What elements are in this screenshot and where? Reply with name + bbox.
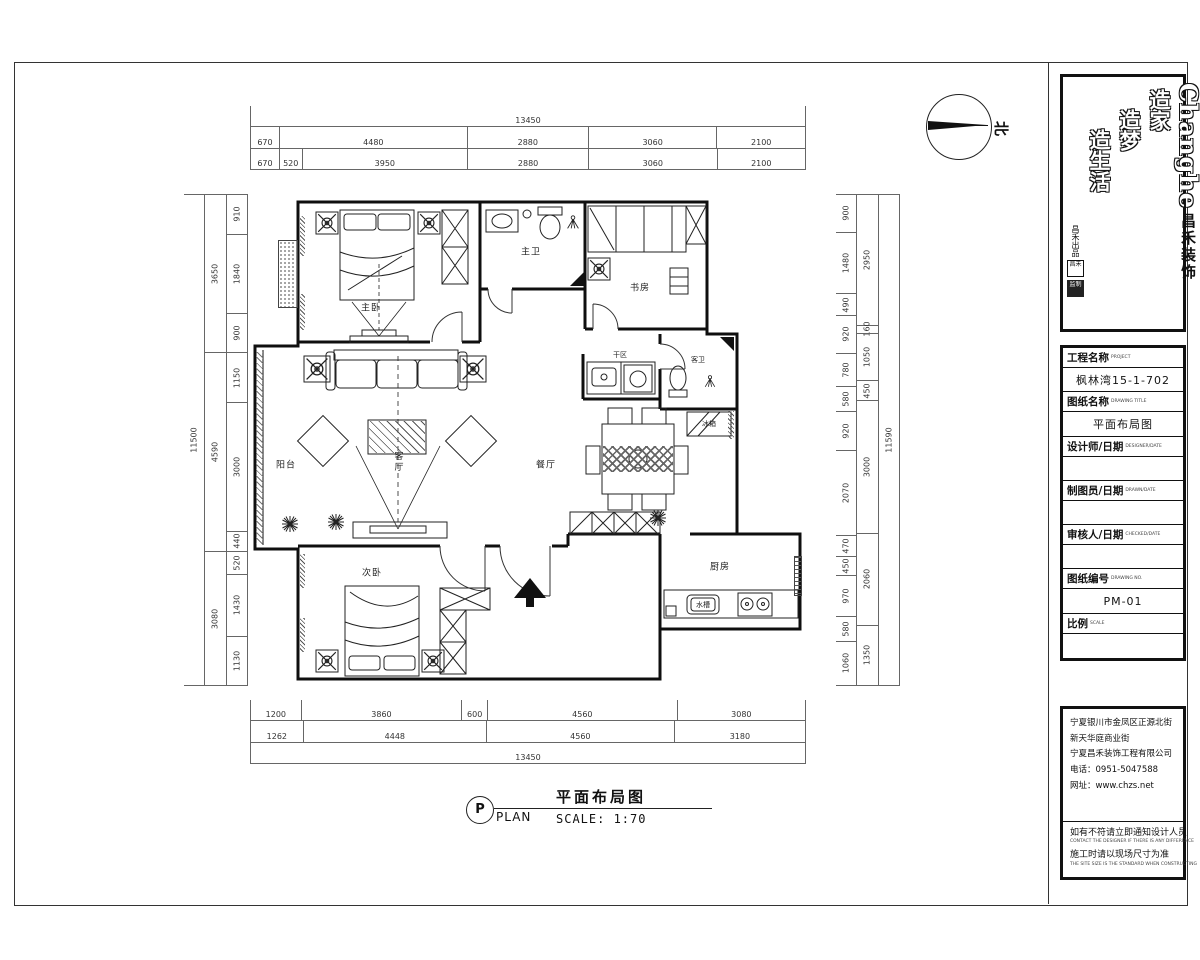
dimension-segment: 450: [836, 556, 856, 575]
room-label-living: 客厅: [392, 451, 405, 473]
dimension-value: 2880: [518, 159, 538, 168]
floor-plan: 主卧 主卫 书房 阳台 客厅 餐厅 干区 客卫 冰箱 厨房 水槽 次卧: [250, 194, 806, 686]
dimension-segment: 4480: [279, 127, 467, 147]
dimension-segment: 1200: [250, 700, 301, 720]
brand-slogan: 造梦: [1114, 83, 1144, 323]
dimensions-left: 11500 365045903080 910184090011503000440…: [184, 194, 248, 686]
dim-col: 365045903080: [205, 194, 226, 686]
dimension-value: 520: [232, 555, 241, 570]
dimension-value: 1060: [842, 653, 851, 673]
titleblock-field-value: 枫林湾15-1-702: [1063, 368, 1183, 392]
curtain-symbol: [300, 294, 305, 330]
label-fridge: 冰箱: [702, 419, 716, 429]
caption-underline: [494, 808, 712, 809]
dimension-segment: 4590: [205, 352, 225, 551]
room-label-dining: 餐厅: [536, 458, 556, 471]
brand-logo-en: Changhe: [1174, 83, 1200, 209]
address-line: 宁夏昌禾装饰工程有限公司: [1070, 747, 1176, 763]
field-label-cn: 图纸编号: [1067, 571, 1109, 586]
north-label: 北: [991, 121, 1012, 136]
dimension-segment: 580: [836, 616, 856, 641]
dimension-segment: 3080: [677, 700, 805, 720]
dimension-value: 1840: [232, 264, 241, 284]
dimension-value: 580: [842, 391, 851, 406]
dimension-segment: 520: [279, 149, 302, 169]
dimension-segment: 1050: [857, 333, 877, 380]
dimension-value: 1130: [232, 651, 241, 671]
dimension-segment: 1150: [227, 352, 247, 402]
dimension-segment: 470: [836, 535, 856, 555]
titleblock-field-label: 制图员/日期DRAWN/DATE: [1063, 481, 1183, 501]
dimension-value: 3860: [371, 710, 391, 719]
dimension-value: 1200: [266, 710, 286, 719]
curtain-symbol: [300, 216, 305, 256]
room-label-dry-area: 干区: [613, 350, 627, 360]
field-label-cn: 审核人/日期: [1067, 527, 1123, 542]
dimension-segment: 780: [836, 353, 856, 386]
field-label-en: DESIGNER/DATE: [1125, 444, 1162, 449]
dimension-segment: 970: [836, 575, 856, 616]
dimension-segment: 900: [227, 313, 247, 352]
note-en: THE SITE SIZE IS THE STANDARD WHEN CONST…: [1070, 862, 1176, 867]
room-label-master-bedroom: 主卧: [361, 301, 381, 314]
address-line: 新天华庭商业街: [1070, 732, 1176, 748]
dimension-segment: 600: [461, 700, 487, 720]
dimension-value: 4480: [363, 138, 383, 147]
dimension-segment: 2060: [857, 533, 877, 624]
dimensions-top: 13450 6704480288030602100 67052039502880…: [250, 106, 806, 170]
address-line: 电话：0951-5047588: [1070, 763, 1176, 779]
field-label-en: CHECKED/DATE: [1125, 532, 1160, 537]
dimension-value: 13450: [515, 116, 540, 125]
dimension-segment: 1840: [227, 234, 247, 313]
dimension-segment: 13450: [250, 106, 805, 126]
dimension-value: 910: [232, 207, 241, 222]
plan-caption: P PLAN 平面布局图 SCALE: 1:70: [460, 784, 730, 834]
dim-col: 29501601050450300020601350: [857, 194, 878, 686]
curtain-symbol: [300, 618, 305, 652]
dimension-segment: 2950: [857, 194, 877, 325]
brand-slogan: 造家: [1144, 83, 1174, 323]
titleblock-field-value: PM-01: [1063, 589, 1183, 613]
dim-col-total: 11590: [879, 194, 900, 686]
dimension-value: 470: [842, 538, 851, 553]
field-label-en: DRAWN/DATE: [1125, 488, 1155, 493]
dimensions-bottom: 1200386060045603080 1262444845603180 134…: [250, 700, 806, 764]
room-label-balcony: 阳台: [276, 458, 296, 471]
seal-stamp-dark: 监制: [1067, 280, 1084, 297]
dimension-value: 1050: [863, 346, 872, 366]
coffee-table-hatch: [369, 421, 425, 453]
caption-en: PLAN: [496, 810, 531, 824]
caption-tag: P: [466, 796, 494, 824]
floor-plan-drawing: [250, 194, 806, 686]
note-en: CONTACT THE DESIGNER IF THERE IS ANY DIF…: [1070, 839, 1176, 844]
dimension-value: 4560: [572, 710, 592, 719]
dimension-value: 3060: [642, 138, 662, 147]
dimension-value: 2950: [863, 250, 872, 270]
dim-col: 91018409001150300044052014301130: [227, 194, 248, 686]
radiator-symbol: [728, 411, 734, 439]
dimension-segment: 1130: [227, 636, 247, 685]
field-label-cn: 设计师/日期: [1067, 439, 1123, 454]
address-line: 网址：www.chzs.net: [1070, 779, 1176, 795]
caption-title: 平面布局图: [556, 786, 646, 807]
north-indicator: 北: [926, 94, 1030, 166]
dimension-value: 13450: [515, 753, 540, 762]
dimension-value: 3180: [730, 732, 750, 741]
dimension-segment: 11500: [184, 194, 204, 685]
dimension-segment: 920: [836, 315, 856, 354]
field-label-en: DRAWING NO.: [1111, 576, 1142, 581]
dim-row-total: 13450: [250, 743, 806, 764]
brand-column: Changhe 昌禾装饰: [1174, 83, 1200, 323]
dimension-segment: 670: [250, 127, 279, 147]
brand-slogans: 造家造梦造生活: [1084, 83, 1174, 323]
dimension-segment: 11590: [879, 194, 899, 685]
dimension-value: 520: [283, 159, 298, 168]
note-cn: 施工时请以现场尺寸为准: [1070, 849, 1176, 862]
dining-table-runner: [603, 446, 673, 472]
dimension-value: 2070: [842, 483, 851, 503]
dimension-segment: 3000: [857, 400, 877, 533]
room-label-master-bath: 主卫: [521, 245, 541, 258]
dimension-value: 780: [842, 363, 851, 378]
seal-column: 昌禾出品 昌禾 监制: [1067, 83, 1084, 323]
dimensions-right: 9001480490920780580920207047045097058010…: [836, 194, 900, 686]
room-label-study: 书房: [630, 281, 650, 294]
dimension-segment: 450: [857, 380, 877, 401]
dimension-segment: 520: [227, 551, 247, 574]
note-cn: 如有不符请立即通知设计人员: [1070, 827, 1176, 840]
room-label-guest-bath: 客卫: [691, 355, 705, 365]
titleblock-field-value: [1063, 501, 1183, 525]
dimension-segment: 13450: [250, 743, 805, 763]
dimension-segment: 1350: [857, 625, 877, 685]
dim-col: 9001480490920780580920207047045097058010…: [836, 194, 857, 686]
field-label-cn: 比例: [1067, 616, 1088, 631]
dimension-value: 580: [842, 621, 851, 636]
titleblock-field-label: 工程名称PROJECT: [1063, 348, 1183, 368]
titleblock-field-value: [1063, 457, 1183, 481]
drawing-notes: 如有不符请立即通知设计人员CONTACT THE DESIGNER IF THE…: [1063, 822, 1183, 877]
dimension-segment: 910: [227, 194, 247, 234]
seal-stamp: 昌禾: [1067, 260, 1084, 277]
label-sink: 水槽: [696, 600, 710, 610]
titleblock-divider: [1048, 62, 1049, 904]
dimension-value: 4560: [570, 732, 590, 741]
brand-logo-cn: 昌禾装饰: [1178, 213, 1199, 281]
curtain-symbol: [300, 554, 305, 588]
seal-text: 昌禾出品: [1070, 225, 1081, 257]
titleblock-field-label: 审核人/日期CHECKED/DATE: [1063, 525, 1183, 545]
dim-col-total: 11500: [184, 194, 205, 686]
dim-row: 1262444845603180: [250, 721, 806, 742]
logo-block: 昌禾出品 昌禾 监制 造家造梦造生活 Changhe 昌禾装饰: [1060, 74, 1186, 332]
dimension-segment: 3180: [674, 721, 805, 741]
dimension-value: 11500: [190, 427, 199, 452]
dimension-value: 3000: [863, 457, 872, 477]
titleblock-fields: 工程名称PROJECT枫林湾15-1-702图纸名称DRAWING TITLE平…: [1060, 345, 1186, 661]
dimension-segment: 670: [250, 149, 279, 169]
titleblock-field-label: 图纸名称DRAWING TITLE: [1063, 392, 1183, 412]
dim-row: 6705203950288030602100: [250, 149, 806, 170]
room-label-kitchen: 厨房: [710, 560, 730, 573]
dimension-value: 3080: [731, 710, 751, 719]
dimension-value: 970: [842, 588, 851, 603]
dimension-value: 4590: [211, 442, 220, 462]
dimension-value: 2060: [863, 569, 872, 589]
balcony-window-hatch: [256, 352, 263, 544]
dimension-segment: 3650: [205, 194, 225, 352]
field-label-en: SCALE: [1090, 621, 1104, 626]
dimension-value: 490: [842, 297, 851, 312]
dimension-value: 920: [842, 327, 851, 342]
dimension-value: 3060: [643, 159, 663, 168]
dimension-value: 670: [257, 159, 272, 168]
dim-row: 1200386060045603080: [250, 700, 806, 721]
dimension-segment: 920: [836, 411, 856, 450]
dimension-value: 3950: [375, 159, 395, 168]
dimension-value: 11590: [884, 427, 893, 452]
dimension-segment: 160: [857, 325, 877, 333]
dimension-value: 670: [257, 138, 272, 147]
dimension-segment: 4560: [487, 700, 677, 720]
caption-scale: SCALE: 1:70: [556, 812, 646, 826]
brand-slogan: 造生活: [1084, 83, 1114, 323]
dimension-value: 900: [842, 206, 851, 221]
field-label-cn: 图纸名称: [1067, 394, 1109, 409]
doors: [432, 289, 685, 596]
titleblock-field-label: 设计师/日期DESIGNER/DATE: [1063, 437, 1183, 457]
dimension-segment: 1060: [836, 641, 856, 685]
company-info-block: 宁夏银川市金凤区正源北街新天华庭商业街宁夏昌禾装饰工程有限公司电话：0951-5…: [1060, 706, 1186, 880]
drawing-sheet: 主卧 主卫 书房 阳台 客厅 餐厅 干区 客卫 冰箱 厨房 水槽 次卧 1345…: [0, 0, 1200, 960]
dimension-value: 2880: [518, 138, 538, 147]
titleblock-field-value: [1063, 545, 1183, 569]
field-label-en: PROJECT: [1111, 355, 1130, 360]
titleblock-field-value: 平面布局图: [1063, 412, 1183, 436]
dimension-segment: 3060: [588, 149, 716, 169]
dimension-value: 450: [863, 383, 872, 398]
kitchen-window: [794, 556, 802, 596]
dimension-value: 3000: [232, 457, 241, 477]
dimension-segment: 3950: [302, 149, 468, 169]
dimension-segment: 1480: [836, 232, 856, 294]
company-address: 宁夏银川市金凤区正源北街新天华庭商业街宁夏昌禾装饰工程有限公司电话：0951-5…: [1063, 709, 1183, 822]
dimension-segment: 4448: [303, 721, 486, 741]
dimension-value: 450: [842, 558, 851, 573]
dimension-value: 600: [467, 710, 482, 719]
dimension-segment: 1430: [227, 574, 247, 636]
wall-niche: [278, 240, 298, 308]
dimension-value: 2100: [751, 159, 771, 168]
dimension-value: 1150: [232, 368, 241, 388]
walls: [255, 202, 800, 679]
dimension-segment: 2100: [716, 127, 805, 147]
dimension-segment: 2070: [836, 450, 856, 536]
field-label-en: DRAWING TITLE: [1111, 399, 1146, 404]
dimension-segment: 3860: [301, 700, 462, 720]
field-label-cn: 制图员/日期: [1067, 483, 1123, 498]
north-arrow-icon: [926, 94, 990, 158]
dimension-segment: 490: [836, 293, 856, 314]
dimension-value: 1480: [842, 253, 851, 273]
dimension-segment: 2100: [717, 149, 805, 169]
dimension-segment: 440: [227, 531, 247, 551]
dimension-value: 920: [842, 423, 851, 438]
dimension-segment: 4560: [486, 721, 674, 741]
dimension-segment: 2880: [467, 127, 588, 147]
dimension-segment: 3000: [227, 402, 247, 531]
dimension-value: 1262: [267, 732, 287, 741]
address-line: 宁夏银川市金凤区正源北街: [1070, 716, 1176, 732]
dimension-segment: 580: [836, 386, 856, 411]
dimension-value: 2100: [751, 138, 771, 147]
titleblock-field-label: 图纸编号DRAWING NO.: [1063, 569, 1183, 589]
dimension-segment: 900: [836, 194, 856, 232]
dimension-value: 1430: [232, 595, 241, 615]
dimension-value: 1350: [863, 645, 872, 665]
dim-row: 6704480288030602100: [250, 127, 806, 148]
titleblock-field-value: [1063, 634, 1183, 658]
dimension-value: 3080: [211, 608, 220, 628]
dimension-segment: 1262: [250, 721, 303, 741]
furniture: [282, 206, 798, 676]
dimension-value: 900: [232, 326, 241, 341]
dimension-value: 4448: [385, 732, 405, 741]
dimension-segment: 3080: [205, 551, 225, 685]
dimension-value: 440: [232, 534, 241, 549]
titleblock-field-label: 比例SCALE: [1063, 614, 1183, 634]
dimension-segment: 3060: [588, 127, 717, 147]
field-label-cn: 工程名称: [1067, 350, 1109, 365]
dimension-value: 3650: [211, 263, 220, 283]
room-label-second-bedroom: 次卧: [362, 566, 382, 579]
dimension-segment: 2880: [467, 149, 588, 169]
dim-row-total: 13450: [250, 106, 806, 127]
